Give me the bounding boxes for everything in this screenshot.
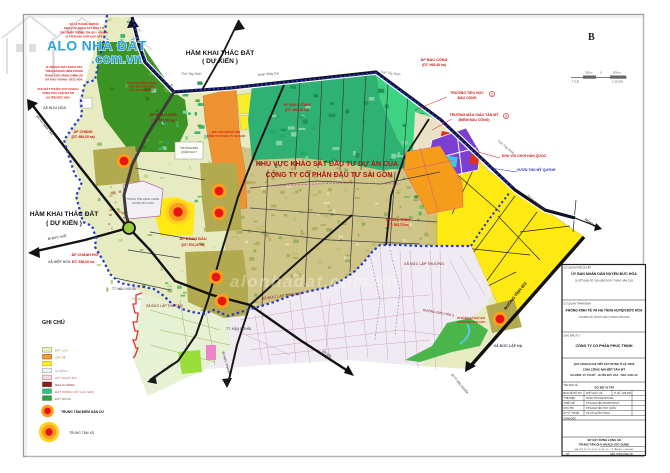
svg-text:250m: 250m xyxy=(585,71,593,75)
svg-text:KTS.NGUYỄN THANH NHỰT: KTS.NGUYỄN THANH NHỰT xyxy=(586,402,620,405)
svg-text:ĐẤT TRỒNG CÂY LÂU NĂM: ĐẤT TRỒNG CÂY LÂU NĂM xyxy=(55,389,94,394)
svg-text:XÃ ĐỨC LẬP HẠ: XÃ ĐỨC LẬP HẠ xyxy=(494,343,523,348)
svg-text:ĐẤT NGHĨA ĐỊA: ĐẤT NGHĨA ĐỊA xyxy=(55,375,77,380)
svg-text:PHÒNG KINH TẾ VÀ HẠ TẦNG HUYỆN: PHÒNG KINH TẾ VÀ HẠ TẦNG HUYỆN ĐỨC HÒA xyxy=(566,308,643,313)
svg-text:XÃ ĐỨC LẬP THƯỢNG: XÃ ĐỨC LẬP THƯỢNG xyxy=(146,303,183,308)
svg-text:(DT: 576,20 ha): (DT: 576,20 ha) xyxy=(181,243,204,247)
svg-text:1:25.000: 1:25.000 xyxy=(612,80,623,84)
svg-text:THỂ HIỆN: THỂ HIỆN xyxy=(564,397,576,400)
svg-text:TỈ LỆ: TỈ LỆ xyxy=(572,79,579,84)
svg-text:ĐẤT LÚA: ĐẤT LÚA xyxy=(55,348,68,353)
svg-text:SƠ ĐỒ VỊ TRÍ: SƠ ĐỒ VỊ TRÍ xyxy=(594,385,613,390)
svg-text:VĂN BẢN SỐ: /PKTHT NGÀY THÁN: VĂN BẢN SỐ: /PKTHT NGÀY THÁNG NĂM 2019 xyxy=(579,316,630,319)
svg-text:ẤP BÀU CÔNG: ẤP BÀU CÔNG xyxy=(421,57,448,62)
svg-text:KT KỸ THUẬT: KT KỸ THUẬT xyxy=(564,412,581,415)
svg-text:QUY HOẠCH CHI TIẾT XÂY DỰNG TỈ: QUY HOẠCH CHI TIẾT XÂY DỰNG TỈ LỆ 1/500 xyxy=(574,361,635,366)
svg-text:TRUNG TÂM QUY HOẠCH XÂY DỰNG: TRUNG TÂM QUY HOẠCH XÂY DỰNG xyxy=(579,442,629,447)
svg-text:(ĐIỂM BÀU CÔNG): (ĐIỂM BÀU CÔNG) xyxy=(458,117,489,122)
svg-text:CÂY MÌ: CÂY MÌ xyxy=(55,354,65,359)
svg-text:ẤP BÌNH LONG: ẤP BÌNH LONG xyxy=(149,112,177,117)
svg-text:B: B xyxy=(588,32,595,43)
svg-text:(DT: 995,48 ha): (DT: 995,48 ha) xyxy=(285,108,309,112)
svg-text:(DT: 551,00 ha): (DT: 551,00 ha) xyxy=(151,119,175,123)
svg-text:TRẦN THỊ CẨM NHUNG: TRẦN THỊ CẨM NHUNG xyxy=(586,397,614,400)
svg-text:TRUNG TÂM ĐIỂM DÂN CƯ: TRUNG TÂM ĐIỂM DÂN CƯ xyxy=(61,409,104,414)
svg-text:NĂM THÁNG BẢN VẼ: NĂM THÁNG BẢN VẼ xyxy=(610,453,633,456)
svg-text:ĐẤT RỪNG: ĐẤT RỪNG xyxy=(55,396,72,401)
svg-text:HUYỆN ĐỨC HÒA: HUYỆN ĐỨC HÒA xyxy=(46,94,70,99)
svg-text:QUYẾT ĐỊNH SỐ: /QĐ-UBND NGÀY: QUYẾT ĐỊNH SỐ: /QĐ-UBND NGÀY THÁNG NĂM 2… xyxy=(575,280,634,283)
svg-text:ẤP ĐỒNG ĐẦU: ẤP ĐỒNG ĐẦU xyxy=(180,236,207,241)
svg-text:TRƯỜNG MẪU GIÁO TÂN MỸ: TRƯỜNG MẪU GIÁO TÂN MỸ xyxy=(449,112,499,117)
svg-text:alonhadat.com.vn: alonhadat.com.vn xyxy=(230,272,399,291)
svg-text:XÃ HIỆP HÒA: XÃ HIỆP HÒA xyxy=(48,259,71,264)
svg-text:ĐỊA ĐIỂM: XÃ TÂN MỸ - HUYỆN ĐỨ: ĐỊA ĐIỂM: XÃ TÂN MỸ - HUYỆN ĐỨC HÒA - TỈ… xyxy=(570,374,637,377)
svg-text:TÊN BẢN VẼ: TÊN BẢN VẼ xyxy=(564,384,579,387)
svg-text:ẤP CHÁNH HỘI: ẤP CHÁNH HỘI xyxy=(72,252,99,257)
svg-text:BẢN VẼ HỒ SƠ: BẢN VẼ HỒ SƠ xyxy=(564,392,583,395)
svg-text:(DT: 995,48 ha): (DT: 995,48 ha) xyxy=(422,63,446,67)
svg-text:XÃ HỰU THẠNH - ĐỨC HÒA: XÃ HỰU THẠNH - ĐỨC HÒA xyxy=(45,77,82,82)
svg-text:.com.vn: .com.vn xyxy=(91,52,142,67)
svg-text:2: 2 xyxy=(505,115,507,119)
svg-text:THIẾT KẾ: THIẾT KẾ xyxy=(564,402,576,405)
svg-text:BÀU CÔNG: BÀU CÔNG xyxy=(457,95,476,100)
svg-text:TỈ LỆ: 1/25.000: TỈ LỆ: 1/25.000 xyxy=(614,392,632,395)
svg-text:TT. HẬU NGHĨA: TT. HẬU NGHĨA xyxy=(226,326,252,331)
svg-text:CỤM CÔNG NGHIỆP TÂN MỸ: CỤM CÔNG NGHIỆP TÂN MỸ xyxy=(583,367,627,372)
svg-text:KS.VÕ QUỐC HÙNG: KS.VÕ QUỐC HÙNG xyxy=(586,412,610,415)
svg-text:ĐỊA CHỈ: SỐ 32 QUỐC LỘ 1A - P2: ĐỊA CHỈ: SỐ 32 QUỐC LỘ 1A - P2 - TP TÂN … xyxy=(575,448,634,451)
svg-text:TRƯỜNG TIỂU HỌC: TRƯỜNG TIỂU HỌC xyxy=(450,90,484,95)
svg-text:500m: 500m xyxy=(613,71,621,75)
svg-text:ỦY BAN NHÂN DÂN HUYỆN ĐỨC HÒA: ỦY BAN NHÂN DÂN HUYỆN ĐỨC HÒA xyxy=(571,271,637,276)
svg-text:CHỦ TRÌ: CHỦ TRÌ xyxy=(564,407,574,410)
svg-text:KHU VUI CHƠI HÀN QUỐC: KHU VUI CHƠI HÀN QUỐC xyxy=(502,153,547,158)
svg-text:(DT: 686,00 ha): (DT: 686,00 ha) xyxy=(71,135,94,139)
svg-text:(DT: 563,73 ha): (DT: 563,73 ha) xyxy=(387,223,409,227)
svg-text:GHI CHÚ: GHI CHÚ xyxy=(42,319,65,326)
svg-text:XÃ HỰU HÒA: XÃ HỰU HÒA xyxy=(43,105,66,110)
svg-text:NHÀ Ở HỒNG: NHÀ Ở HỒNG xyxy=(55,382,75,387)
svg-text:Tỉnh Tây Ninh: Tỉnh Tây Ninh xyxy=(181,72,202,76)
svg-text:XÃ ĐỨC LẬP THƯỢNG: XÃ ĐỨC LẬP THƯỢNG xyxy=(404,261,444,266)
svg-text:ẤP BÀU CÔNG: ẤP BÀU CÔNG xyxy=(284,102,311,107)
svg-text:SỞ XÂY DỰNG LONG AN: SỞ XÂY DỰNG LONG AN xyxy=(587,437,621,442)
svg-text:SỐ:: SỐ: xyxy=(566,453,570,456)
svg-text:KHỔ GIẤY: A3: KHỔ GIẤY: A3 xyxy=(586,392,603,395)
svg-text:1: 1 xyxy=(491,93,493,97)
svg-text:ẤP CHÁNH: ẤP CHÁNH xyxy=(74,129,93,134)
svg-text:TRUNG TÂM XÃ: TRUNG TÂM XÃ xyxy=(69,430,95,435)
svg-text:TT. HẬU NGHĨA: TT. HẬU NGHĨA xyxy=(112,286,137,291)
svg-text:DU LỊCH SINH THÁI: DU LỊCH SINH THÁI xyxy=(130,89,154,92)
svg-text:AO ĐÌNH: AO ĐÌNH xyxy=(55,369,68,373)
svg-text:VƯỜN THÚ MỸ QUỲNH: VƯỜN THÚ MỸ QUỲNH xyxy=(517,167,556,172)
svg-text:ĐT: 356,00 ha: ĐT: 356,00 ha xyxy=(72,260,94,264)
svg-text:KTS.NGUYỄN HUY QUỐC: KTS.NGUYỄN HUY QUỐC xyxy=(586,407,617,410)
svg-text:ẤP BÀU TRÀM: ẤP BÀU TRÀM xyxy=(386,217,411,222)
svg-text:CÔNG TY CỔ PHẦN PHÚC THỊNH: CÔNG TY CỔ PHẦN PHÚC THỊNH xyxy=(575,343,632,348)
